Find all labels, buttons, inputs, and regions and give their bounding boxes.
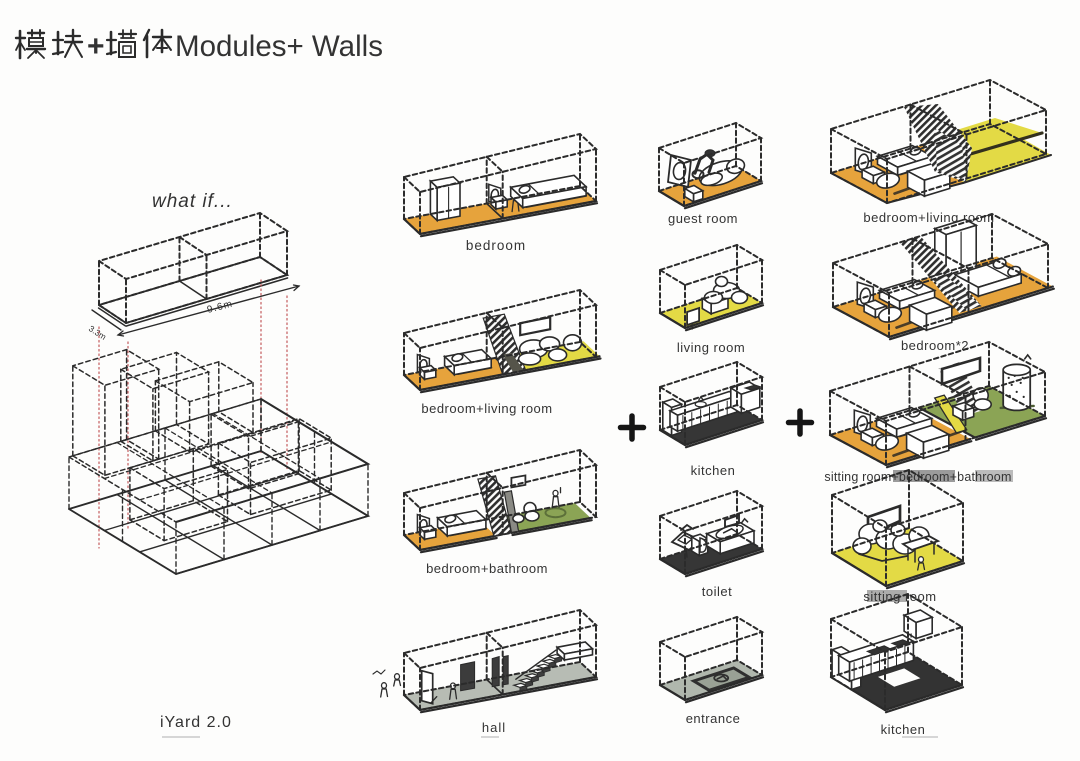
svg-text:kitchen: kitchen: [881, 722, 926, 737]
svg-text:what if...: what if...: [152, 191, 233, 212]
svg-text:hall: hall: [482, 720, 506, 735]
svg-text:bedroom: bedroom: [466, 238, 526, 253]
svg-text:bedroom+living room: bedroom+living room: [421, 401, 552, 416]
svg-text:Modules+ Walls: Modules+ Walls: [175, 30, 383, 63]
svg-text:guest room: guest room: [668, 211, 738, 226]
svg-text:bedroom+living room: bedroom+living room: [863, 210, 994, 225]
svg-text:toilet: toilet: [702, 584, 732, 599]
svg-text:3.3m: 3.3m: [87, 323, 108, 342]
svg-text:iYard 2.0: iYard 2.0: [160, 714, 232, 731]
svg-text:+: +: [87, 30, 105, 63]
svg-text:sitting room+bedroom+bathroom: sitting room+bedroom+bathroom: [824, 470, 1011, 484]
svg-text:entrance: entrance: [686, 711, 741, 726]
svg-text:living room: living room: [677, 340, 745, 355]
svg-text:kitchen: kitchen: [691, 463, 736, 478]
svg-text:bedroom+bathroom: bedroom+bathroom: [426, 561, 548, 576]
